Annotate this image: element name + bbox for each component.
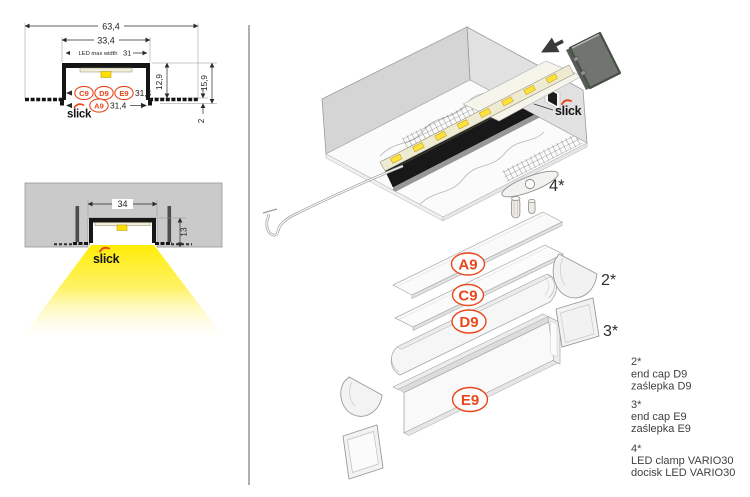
legend-name-pl: zaślepka D9	[631, 381, 692, 393]
spring-clip-left	[76, 206, 80, 242]
legend: 2* end cap D9 zaślepka D9 3* end cap E9 …	[631, 356, 735, 479]
legend-item: 2* end cap D9 zaślepka D9	[631, 356, 692, 393]
cover-label-d9-text: D9	[99, 89, 109, 98]
cover-label-c9-text: C9	[79, 89, 89, 98]
dim-flange-thickness: 2	[197, 88, 206, 123]
profile-cross-section	[25, 63, 198, 106]
legend-item: 3* end cap E9 zaślepka E9	[631, 399, 691, 435]
panel-divider	[248, 25, 250, 485]
dim-inner-width: 33,4	[62, 35, 150, 46]
dim-flange-thickness-value: 2	[197, 118, 206, 123]
brand-logo-text: slick	[93, 252, 120, 266]
dim-cover-bottom-value: 31,4	[110, 101, 127, 111]
endcap-d9-callout: 2*	[601, 272, 616, 289]
cover-label-e9-text: E9	[119, 89, 128, 98]
legend-name-en: end cap E9	[631, 411, 687, 423]
light-cone	[20, 245, 226, 340]
legend-name-en: end cap D9	[631, 369, 687, 381]
clamp-pin-small	[529, 199, 536, 213]
leader-arrow-left	[66, 90, 72, 95]
brand-logo-text: slick	[555, 104, 582, 118]
dim-cover-top-value: 31,4	[135, 88, 152, 98]
label-c9-text: C9	[458, 288, 477, 305]
legend-name-pl: zaślepka E9	[631, 423, 691, 435]
exploded-assembly: slick 4*	[252, 8, 748, 495]
spring-clip-right	[168, 206, 172, 242]
dim-inner-depth: 12,9	[155, 63, 167, 98]
label-e9-text: E9	[461, 392, 479, 409]
cover-label-a9-text: A9	[94, 101, 104, 110]
leader-arrow-right	[141, 103, 147, 108]
endcap-e9-callout: 3*	[603, 323, 618, 340]
dim-inner-depth-value: 12,9	[155, 74, 164, 90]
end-cap-insert	[566, 33, 620, 90]
dim-overall-depth: 15,9	[200, 63, 212, 104]
legend-ref: 4*	[631, 443, 642, 455]
ceiling-panel	[25, 183, 222, 247]
dim-led-max-width-value: 31	[123, 49, 131, 58]
legend-ref: 3*	[631, 399, 642, 411]
dim-recess-depth-value: 13	[180, 227, 189, 237]
clamp-pin-large	[512, 197, 520, 219]
insert-arrow-icon	[544, 41, 563, 51]
brand-logo-text: slick	[67, 109, 92, 121]
dim-led-max-width: LED max width 31	[66, 48, 147, 58]
led-chip	[101, 72, 111, 78]
endcap-e9	[556, 298, 599, 347]
cover-width-row-top: C9 D9 E9 31,4	[66, 86, 152, 99]
dim-inner-width-value: 33,4	[97, 36, 115, 46]
endcap-e9-left	[343, 425, 383, 479]
endcap-d9-left	[341, 377, 382, 416]
dim-opening-width-value: 34	[117, 199, 127, 209]
legend-ref: 2*	[631, 356, 642, 368]
dim-overall-width: 63,4	[25, 21, 198, 32]
label-d9-text: D9	[459, 314, 478, 331]
brand-swoosh-icon	[75, 104, 84, 107]
label-a9-text: A9	[458, 257, 477, 274]
led-chip	[117, 225, 127, 231]
legend-item: 4* LED clamp VARIO30 docisk LED VARIO30	[631, 443, 735, 479]
dim-overall-width-value: 63,4	[102, 22, 120, 32]
legend-name-pl: docisk LED VARIO30	[631, 467, 735, 479]
endcap-d9	[553, 254, 597, 298]
catalog-page: 63,4 33,4 LED max width 31	[0, 0, 750, 497]
dim-overall-depth-value: 15,9	[200, 75, 209, 91]
clamp-callout: 4*	[549, 177, 565, 195]
installed-drawing: 34 13 slick	[10, 176, 245, 354]
leader-arrow-left	[66, 103, 72, 108]
cross-section-drawing: 63,4 33,4 LED max width 31	[10, 10, 242, 142]
legend-name-en: LED clamp VARIO30	[631, 455, 734, 467]
dim-led-max-width-label: LED max width	[79, 51, 118, 57]
